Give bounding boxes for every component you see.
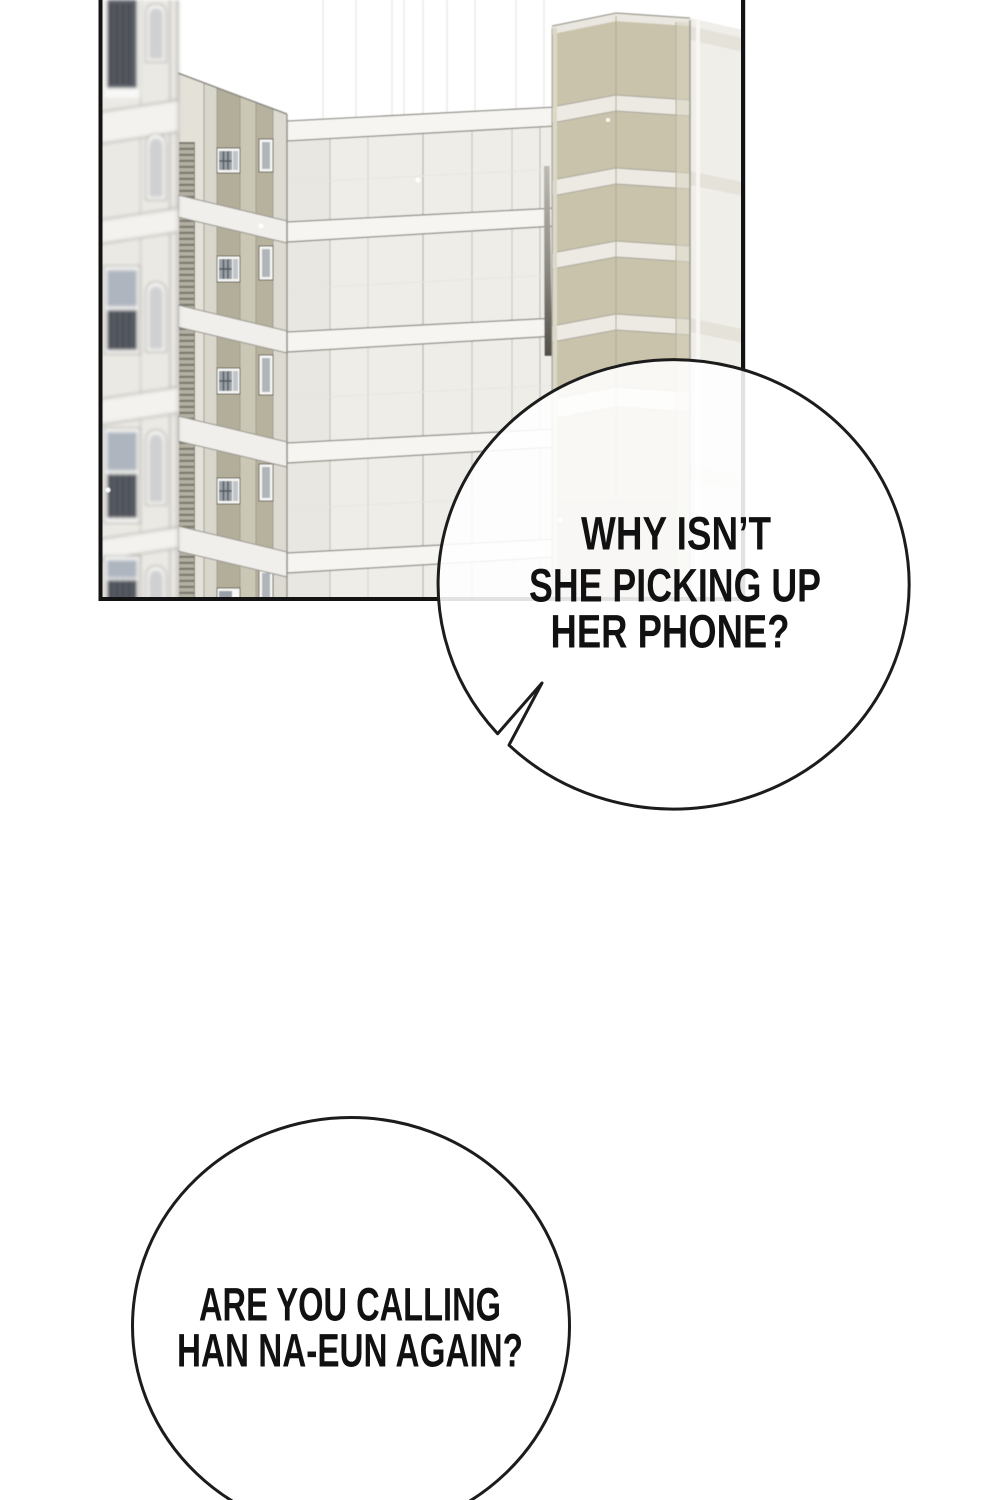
svg-text:HER PHONE?: HER PHONE? [551, 605, 790, 658]
svg-text:HAN NA-EUN AGAIN?: HAN NA-EUN AGAIN? [177, 1324, 523, 1377]
svg-text:WHY ISN’T: WHY ISN’T [581, 507, 771, 560]
